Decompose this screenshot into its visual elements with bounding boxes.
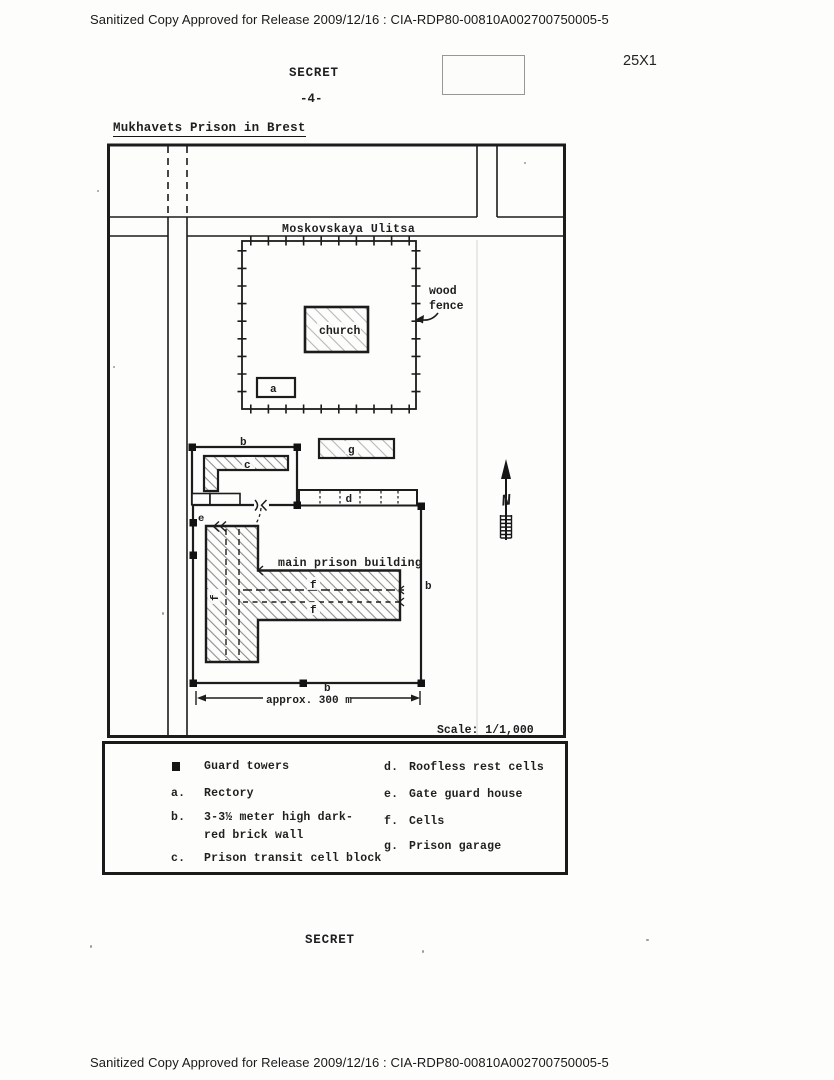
annex-room-2 [210,494,240,506]
rest-cells [299,490,417,506]
legend-label-g: Prison garage [409,840,501,853]
marker-f-wing: f [210,594,222,601]
scan-speck [113,366,115,368]
marker-b-east: b [425,581,432,593]
page-title: Mukhavets Prison in Brest [113,121,306,137]
marker-g: g [348,445,355,457]
legend-key-c: c. [171,852,185,865]
north-letter: N [500,491,512,510]
scan-speck [422,950,424,953]
marker-f-upper: f [310,580,317,592]
gate-guard-house [190,519,198,527]
marker-c: c [244,460,251,472]
legend-label-e: Gate guard house [409,788,523,801]
legend-key-e: e. [384,788,398,801]
legend-label-c: Prison transit cell block [204,852,382,865]
scan-speck [162,612,164,615]
page-number: -4- [300,92,323,106]
marker-d: d [346,494,353,506]
document-page: Sanitized Copy Approved for Release 2009… [0,0,834,1080]
north-arrow: N [500,459,512,540]
legend-label-b2: red brick wall [204,829,303,842]
release-stamp-header: Sanitized Copy Approved for Release 2009… [90,12,609,27]
marker-a: a [270,384,277,396]
redaction-box [442,55,525,95]
wood-fence-label-1: wood [429,285,457,298]
scan-speck [524,162,526,164]
annex-room-1 [192,494,210,506]
legend-label-b1: 3-3½ meter high dark- [204,811,353,824]
dimension-label: approx. 300 m [266,695,352,707]
scale-label: Scale: 1/1,000 [437,724,534,737]
classification-bottom: SECRET [305,933,355,947]
marker-e: e [198,513,204,525]
street-label: Moskovskaya Ulitsa [282,223,415,236]
scan-speck [97,190,99,192]
church-label: church [319,325,361,338]
marker-f-lower: f [310,605,317,617]
legend-label-f: Cells [409,815,445,828]
legend-key-f: f. [384,815,398,828]
marker-b-south: b [324,683,331,695]
wood-fence-label-2: fence [429,300,464,313]
main-prison-building [206,526,400,662]
legend-key-a: a. [171,787,185,800]
legend-key-b: b. [171,811,185,824]
legend-key-g: g. [384,840,398,853]
legend-label-d: Roofless rest cells [409,761,544,774]
marginal-code: 25X1 [623,53,657,69]
guard-tower-symbol [172,762,180,771]
prison-site-map: Moskovskaya Ulitsa church a wood fence b [95,138,575,750]
legend-guard-towers: Guard towers [204,760,289,773]
legend-label-a: Rectory [204,787,254,800]
marker-b-top: b [240,437,247,449]
scan-speck [90,945,92,948]
legend-key-d: d. [384,761,398,774]
main-building-label: main prison building [278,557,422,570]
scan-speck [646,939,649,941]
classification-top: SECRET [289,66,339,80]
release-stamp-footer: Sanitized Copy Approved for Release 2009… [90,1055,609,1070]
